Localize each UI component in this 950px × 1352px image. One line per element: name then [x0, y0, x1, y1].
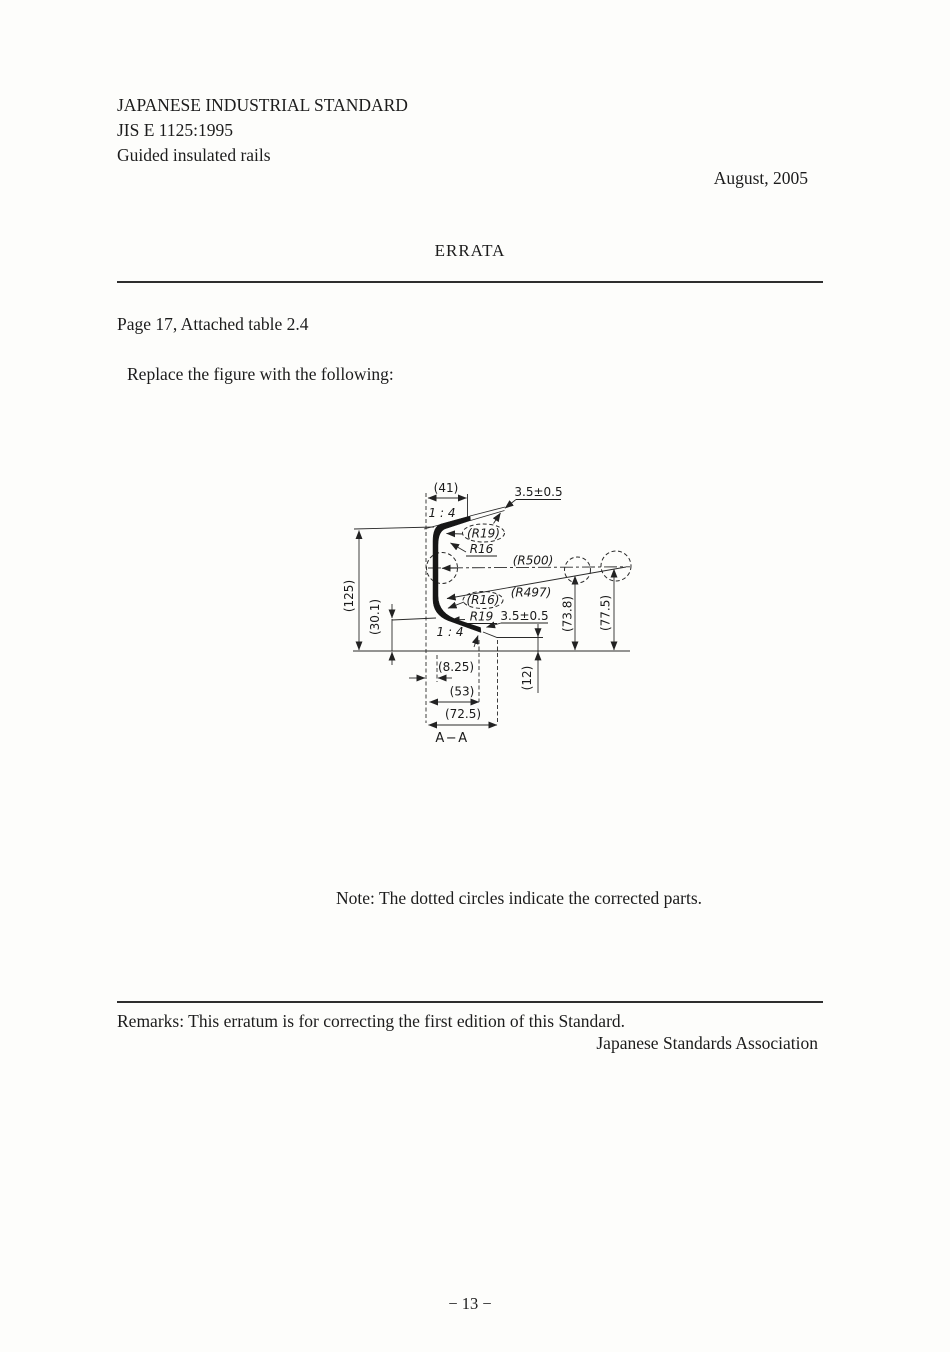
divider-top — [117, 281, 823, 283]
divider-bottom — [117, 1001, 823, 1003]
association-name: Japanese Standards Association — [518, 1033, 818, 1054]
issue-date: August, 2005 — [608, 168, 808, 189]
figure-container: (41) 3.5±0.5 1 : 4 (R19) R16 (R500) (R16… — [330, 460, 680, 760]
slope-top: 1 : 4 — [429, 506, 456, 520]
standard-name: JAPANESE INDUSTRIAL STANDARD — [117, 95, 408, 116]
radius-r19-bottom: R19 — [470, 610, 494, 624]
remarks-line: Remarks: This erratum is for correcting … — [117, 1011, 625, 1032]
dim-thickness-top: 3.5±0.5 — [514, 485, 562, 499]
rail-cross-section-figure: (41) 3.5±0.5 1 : 4 (R19) R16 (R500) (R16… — [330, 460, 680, 760]
errata-reference: Page 17, Attached table 2.4 — [117, 314, 308, 335]
slope-bottom: 1 : 4 — [437, 625, 464, 639]
radius-r500: (R500) — [513, 554, 554, 568]
correction-circle-r500-center — [601, 551, 631, 581]
errata-document-page: JAPANESE INDUSTRIAL STANDARD JIS E 1125:… — [0, 0, 950, 1352]
dim-height-lower: (30.1) — [368, 599, 382, 635]
dim-width-53: (53) — [450, 685, 475, 699]
dim-width-8-25: (8.25) — [438, 660, 474, 674]
standard-title: Guided insulated rails — [117, 145, 271, 166]
errata-instruction: Replace the figure with the following: — [127, 364, 394, 385]
dim-height-73-8: (73.8) — [561, 596, 575, 632]
figure-labels: (41) 3.5±0.5 1 : 4 (R19) R16 (R500) (R16… — [342, 481, 613, 746]
dim-width-72-5: (72.5) — [445, 707, 481, 721]
figure-note: Note: The dotted circles indicate the co… — [336, 888, 702, 909]
radius-r19-top: (R19) — [467, 527, 500, 541]
dim-thickness-bottom: 3.5±0.5 — [500, 609, 548, 623]
correction-circle-r497-center — [565, 557, 591, 583]
radius-r16-bottom: (R16) — [467, 593, 500, 607]
standard-number: JIS E 1125:1995 — [117, 120, 233, 141]
radius-r497: (R497) — [511, 586, 552, 600]
dim-height-77-5: (77.5) — [599, 595, 613, 631]
section-label: A−A — [435, 731, 468, 746]
dim-height-overall: (125) — [342, 580, 356, 612]
dim-offset-12: (12) — [520, 666, 534, 691]
dim-width-top: (41) — [434, 481, 459, 495]
page-number: − 13 − — [117, 1294, 823, 1314]
radius-r16-top: R16 — [470, 542, 494, 556]
errata-title: ERRATA — [117, 241, 823, 261]
